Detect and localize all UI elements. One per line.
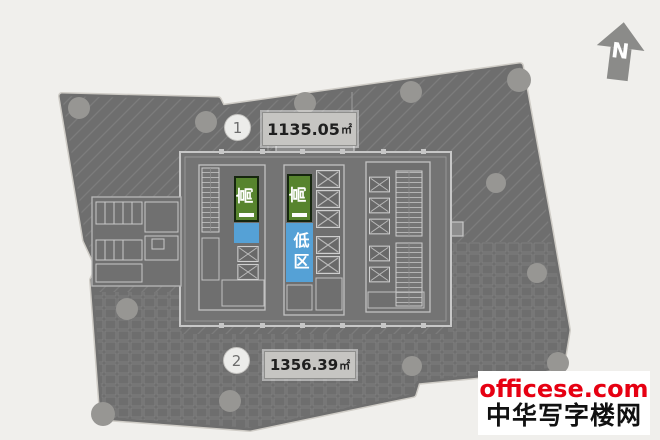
unit-2-number-badge: 2 [223, 347, 250, 374]
elevator-cell [317, 171, 340, 188]
elevator-cell [317, 191, 340, 208]
elevator-cell [317, 211, 340, 228]
zone-divider-dash [292, 213, 307, 217]
high-zone-label: 高 [238, 187, 255, 204]
low-zone-elevator-left [234, 223, 259, 243]
floorplan-page: 高 高 低区 1 1135.05㎡ 2 1356.39㎡ N officese.… [0, 0, 660, 440]
north-arrow-icon: N [588, 19, 651, 87]
service-core [168, 141, 463, 328]
watermark-site-name: 中华写字楼网 [486, 402, 642, 430]
zone-divider-dash [239, 213, 254, 217]
unit-2-area-value: 1356.39 [270, 356, 338, 374]
restroom-wing [92, 197, 181, 286]
unit-1-number-badge: 1 [224, 114, 251, 141]
high-zone-label: 高 [291, 186, 308, 203]
unit-2-area-label: 1356.39㎡ [264, 351, 356, 379]
high-zone-elevator-middle: 高 [287, 174, 312, 222]
unit-1-area-value: 1135.05 [267, 120, 340, 139]
elevator-cell [370, 219, 390, 234]
unit-1-area-unit: ㎡ [341, 121, 352, 137]
unit-2-number: 2 [232, 352, 242, 370]
elevator-cell [238, 247, 258, 262]
elevator-cell [317, 237, 340, 254]
elevator-cell [238, 265, 258, 280]
unit-1-area-label: 1135.05㎡ [262, 112, 357, 146]
low-zone-elevator-middle: 低区 [286, 223, 313, 282]
elevator-cell [370, 246, 390, 261]
elevator-cell [370, 267, 390, 282]
unit-1-number: 1 [233, 119, 243, 137]
low-zone-label: 低区 [292, 232, 308, 274]
watermark: officese.com 中华写字楼网 [478, 371, 650, 435]
elevator-cell [370, 177, 390, 192]
core-block-right [366, 162, 430, 312]
watermark-site-url: officese.com [479, 377, 648, 402]
elevator-cell [370, 198, 390, 213]
elevator-cell [317, 257, 340, 274]
high-zone-elevator-left: 高 [234, 176, 259, 222]
unit-2-area-unit: ㎡ [339, 357, 350, 373]
